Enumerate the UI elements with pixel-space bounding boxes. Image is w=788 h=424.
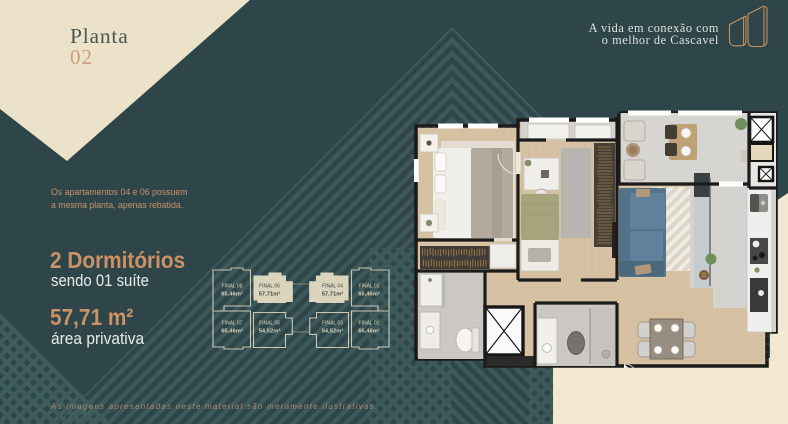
svg-text:FINAL 06: FINAL 06 <box>259 284 280 290</box>
svg-text:65,46m²: 65,46m² <box>221 291 243 298</box>
svg-text:FINAL 08: FINAL 08 <box>222 284 243 290</box>
svg-text:57,71m²: 57,71m² <box>322 291 344 298</box>
svg-text:FINAL 03: FINAL 03 <box>322 321 343 327</box>
svg-text:65,46m²: 65,46m² <box>221 328 243 335</box>
svg-text:FINAL 05: FINAL 05 <box>259 321 280 327</box>
svg-text:57,71m²: 57,71m² <box>259 291 281 298</box>
svg-text:FINAL 04: FINAL 04 <box>322 284 343 290</box>
svg-text:54,52m²: 54,52m² <box>259 328 281 335</box>
svg-text:65,46m²: 65,46m² <box>358 291 380 298</box>
svg-text:FINAL 02: FINAL 02 <box>359 284 380 290</box>
svg-text:FINAL 01: FINAL 01 <box>359 321 380 327</box>
svg-text:65,46m²: 65,46m² <box>358 328 380 335</box>
svg-text:FINAL 07: FINAL 07 <box>222 321 243 327</box>
svg-text:54,52m²: 54,52m² <box>322 328 344 335</box>
